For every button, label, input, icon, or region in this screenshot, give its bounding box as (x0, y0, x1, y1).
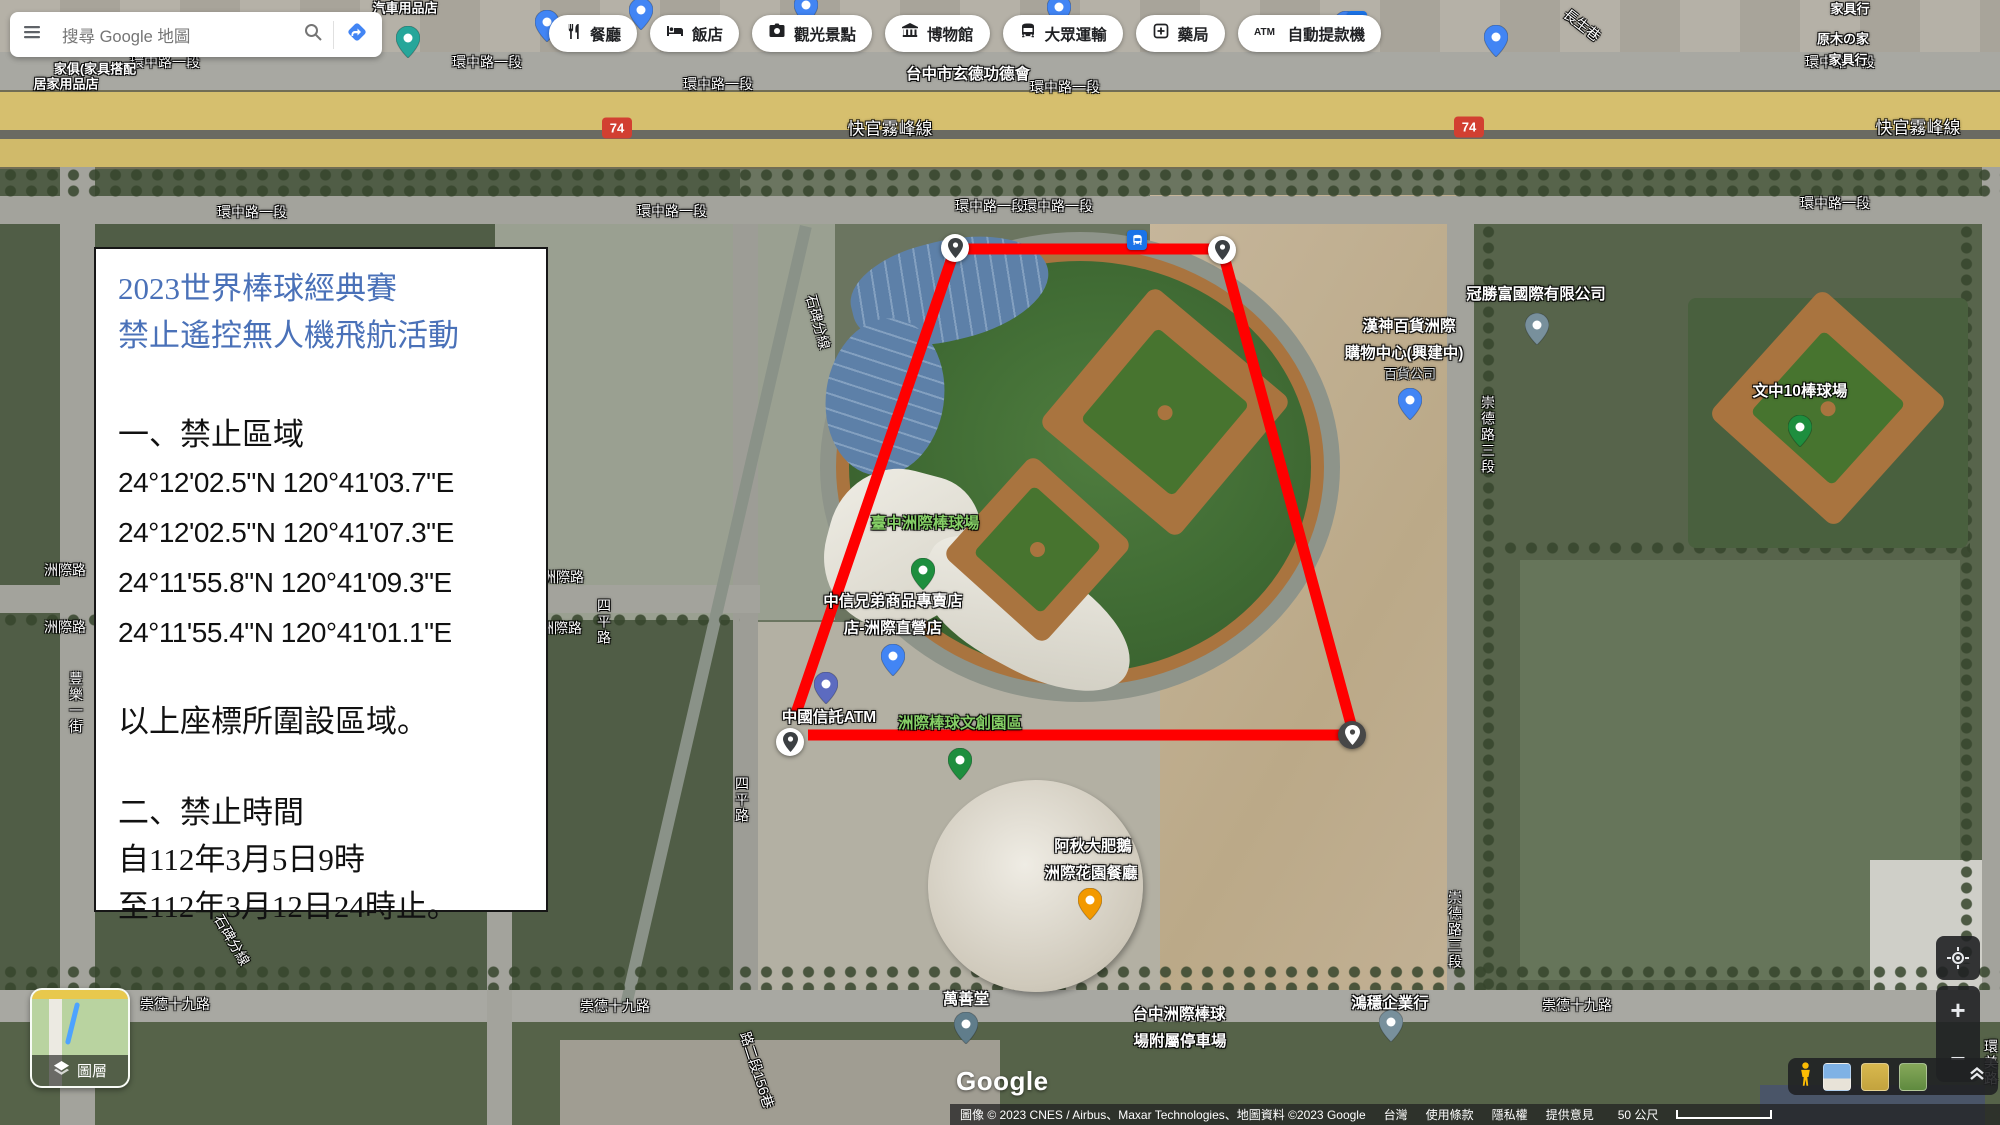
food-pin[interactable] (1078, 888, 1102, 925)
atm-icon: ATM (1254, 24, 1280, 43)
road-label: 四平路 (594, 598, 614, 646)
zone-corner-marker[interactable] (1338, 721, 1366, 749)
poi-label[interactable]: 原木の家 (1817, 29, 1869, 48)
pharmacy-icon (1152, 22, 1170, 45)
svg-text:ATM: ATM (1254, 27, 1275, 38)
notice-coordinate: 24°12'02.5"N 120°41'03.7"E (118, 458, 524, 508)
road-label: 環中路一段 (637, 201, 707, 221)
poi-label[interactable]: 漢神百貨洲際 (1362, 314, 1455, 336)
search-icon[interactable] (303, 22, 323, 47)
notice-time-to: 至112年3月12日24時止。 (118, 883, 524, 930)
poi-label[interactable]: 購物中心(興建中) (1345, 341, 1464, 363)
notice-coordinate: 24°11'55.4"N 120°41'01.1"E (118, 608, 524, 658)
collapse-chevron-icon[interactable] (1966, 1063, 1988, 1090)
parking-pin[interactable] (814, 672, 838, 709)
attraction-icon (768, 22, 786, 45)
road-label: 崇德十九路 (580, 996, 650, 1016)
road-label: 環中路一段 (1023, 196, 1093, 216)
notice-section1-heading: 一、禁止區域 (118, 411, 524, 458)
greenshop-pin[interactable] (948, 748, 972, 785)
chip-label: 觀光景點 (794, 23, 856, 45)
notice-coordinate: 24°12'02.5"N 120°41'07.3"E (118, 508, 524, 558)
attribution-bar: 圖像 © 2023 CNES / Airbus、Maxar Technologi… (950, 1104, 2000, 1125)
chip-label: 飯店 (692, 23, 723, 45)
layers-label-text: 圖層 (77, 1060, 107, 1081)
scale-bar (1676, 1110, 1772, 1119)
layers-button[interactable]: 圖層 (30, 988, 130, 1088)
route-shield-74: 74 (602, 118, 632, 139)
imagery-thumbnail-2[interactable] (1861, 1063, 1889, 1091)
gray-pin[interactable] (1379, 1010, 1403, 1047)
layers-preview-river (65, 1002, 80, 1045)
transit-stop-icon[interactable] (1127, 230, 1147, 250)
route-shield-74: 74 (1454, 117, 1484, 138)
road-label: 快官霧峰線 (1876, 114, 1961, 139)
road-label: 四平路 (732, 776, 752, 824)
road-label: 崇德路三段 (1478, 395, 1498, 475)
chip-transit[interactable]: 大眾運輸 (1003, 15, 1123, 52)
poi-label[interactable]: 台中市玄德功德會 (906, 62, 1030, 84)
poi-label[interactable]: 店-洲際直營店 (844, 616, 942, 638)
chip-atms[interactable]: ATM 自動提款機 (1238, 15, 1382, 52)
hotel-icon (666, 22, 684, 45)
road-label: 環中路一段 (1800, 193, 1870, 213)
chip-museums[interactable]: 博物館 (885, 15, 990, 52)
zone-corner-marker[interactable] (776, 728, 804, 756)
road-label: 崇德十九路 (140, 994, 210, 1014)
notice-section1-note: 以上座標所圍設區域。 (118, 698, 524, 745)
transit-chip-icon (1019, 22, 1037, 45)
poi-label[interactable]: 中信兄弟商品專賣店 (823, 589, 963, 611)
zone-corner-marker[interactable] (941, 234, 969, 262)
map-attribution: 圖像 © 2023 CNES / Airbus、Maxar Technologi… (960, 1106, 1366, 1123)
notice-section2-heading: 二、禁止時間 (118, 789, 524, 836)
road-label: 崇德十九路 (1542, 995, 1612, 1015)
road-label: 洲際路 (44, 560, 86, 580)
chip-attractions[interactable]: 觀光景點 (752, 15, 872, 52)
chip-label: 博物館 (927, 23, 974, 45)
chip-label: 自動提款機 (1288, 23, 1366, 45)
chip-label: 藥局 (1178, 23, 1209, 45)
road-label: 洲際路 (542, 567, 584, 587)
shop-pin[interactable] (881, 644, 905, 681)
chip-label: 餐廳 (590, 23, 621, 45)
link-privacy[interactable]: 隱私權 (1492, 1106, 1528, 1123)
teal-pin[interactable] (396, 26, 420, 63)
zoom-in-button[interactable]: + (1936, 990, 1980, 1030)
poi-label[interactable]: 文中10棒球場 (1753, 379, 1848, 401)
road-label: 環中路一段 (1030, 77, 1100, 97)
chip-label: 大眾運輸 (1045, 23, 1107, 45)
road-label: 環中路一段 (217, 202, 287, 222)
link-region[interactable]: 台灣 (1384, 1106, 1408, 1123)
directions-button[interactable] (344, 19, 370, 50)
link-terms[interactable]: 使用條款 (1426, 1106, 1474, 1123)
poi-label[interactable]: 萬善堂 (943, 987, 990, 1009)
searchbar-divider (333, 21, 334, 49)
shop-pin[interactable] (1398, 388, 1422, 425)
green-pin[interactable] (1788, 415, 1812, 452)
menu-icon[interactable] (22, 22, 42, 47)
shop-pin[interactable] (1484, 25, 1508, 62)
google-watermark: Google (956, 1066, 1049, 1097)
restaurant-icon (565, 23, 582, 45)
imagery-thumbnail-3[interactable] (1899, 1063, 1927, 1091)
scale-text: 50 公尺 (1618, 1106, 1659, 1123)
poi-label[interactable]: 洲際花園餐廳 (1044, 861, 1137, 883)
my-location-button[interactable] (1936, 936, 1980, 980)
poi-label[interactable]: 台中洲際棒球 (1132, 1002, 1225, 1024)
layers-preview-highway (32, 990, 128, 999)
imagery-thumbnail-1[interactable] (1823, 1063, 1851, 1091)
poi-label[interactable]: 臺中洲際棒球場 (871, 511, 980, 533)
road-label: 環中路一段 (452, 52, 522, 72)
imagery-bar (1788, 1058, 1998, 1095)
category-chips: 餐廳 飯店 觀光景點 博物館 大眾運輸 藥局 ATM 自動提款機 (549, 15, 1381, 52)
no-fly-notice-box: 2023世界棒球經典賽 禁止遙控無人機飛航活動 一、禁止區域 24°12'02.… (94, 247, 548, 912)
zone-corner-marker[interactable] (1208, 236, 1236, 264)
link-feedback[interactable]: 提供意見 (1546, 1106, 1594, 1123)
notice-coordinate: 24°11'55.8"N 120°41'09.3"E (118, 558, 524, 608)
poi-label[interactable]: 百貨公司 (1384, 364, 1436, 383)
gray-pin[interactable] (1525, 313, 1549, 350)
chip-pharmacies[interactable]: 藥局 (1136, 15, 1225, 52)
road-label: 環中路一段 (683, 74, 753, 94)
chip-restaurants[interactable]: 餐廳 (549, 15, 637, 52)
poi-label[interactable]: 場附屬停車場 (1133, 1029, 1226, 1051)
poi-label[interactable]: 家具行 (1828, 50, 1867, 69)
notice-title-2: 禁止遙控無人機飛航活動 (118, 312, 524, 359)
search-bar[interactable]: 搜尋 Google 地圖 (10, 12, 382, 57)
road-label: 環中路一段 (955, 196, 1025, 216)
poi-label[interactable]: 阿秋大肥鵝 (1054, 834, 1132, 856)
green-pin[interactable] (911, 558, 935, 595)
poi-label[interactable]: 洲際棒球文創園區 (898, 711, 1022, 733)
my-location-icon (1946, 946, 1970, 970)
road-label: 快官霧峰線 (848, 115, 933, 140)
road-label: 豐樂一街 (66, 671, 86, 735)
poi-label[interactable]: 家具行 (1830, 0, 1869, 18)
notice-title-1: 2023世界棒球經典賽 (118, 265, 524, 312)
poi-label[interactable]: 汽車用品店 (372, 0, 437, 17)
road-label: 崇德路三段 (1445, 890, 1465, 970)
museum-icon (901, 22, 919, 45)
notice-time-from: 自112年3月5日9時 (118, 836, 524, 883)
layers-button-label: 圖層 (32, 1055, 128, 1086)
road-label: 洲際路 (44, 617, 86, 637)
search-input[interactable]: 搜尋 Google 地圖 (62, 23, 303, 47)
chip-hotels[interactable]: 飯店 (650, 15, 739, 52)
temple-pin[interactable] (954, 1012, 978, 1049)
pegman-icon[interactable] (1798, 1061, 1813, 1092)
layers-icon (53, 1060, 70, 1081)
poi-label[interactable]: 家俱(家具搭配 (54, 59, 136, 78)
poi-label[interactable]: 冠勝富國際有限公司 (1466, 282, 1606, 304)
